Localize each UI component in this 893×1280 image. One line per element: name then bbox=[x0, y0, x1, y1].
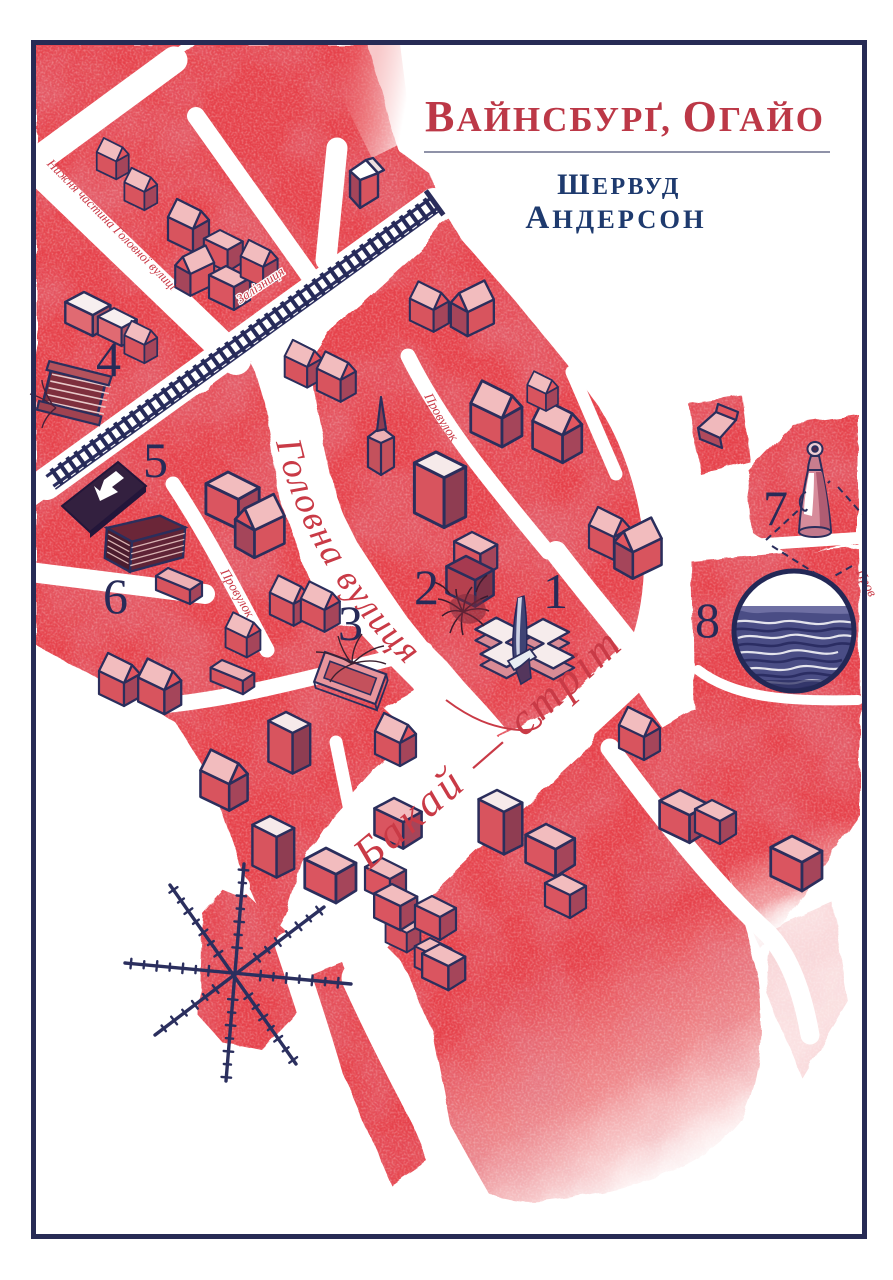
svg-text:4: 4 bbox=[96, 331, 121, 387]
svg-text:6: 6 bbox=[103, 568, 128, 624]
svg-text:АНДЕРСОН: АНДЕРСОН bbox=[525, 200, 706, 236]
svg-text:5: 5 bbox=[143, 432, 168, 488]
svg-text:3: 3 bbox=[338, 595, 363, 651]
svg-text:ШЕРВУД: ШЕРВУД bbox=[557, 169, 681, 201]
svg-text:2: 2 bbox=[414, 559, 439, 615]
svg-text:1: 1 bbox=[543, 563, 568, 619]
svg-text:7: 7 bbox=[763, 480, 788, 536]
svg-text:ВАЙНСБУРҐ, ОГАЙО: ВАЙНСБУРҐ, ОГАЙО bbox=[425, 92, 825, 141]
svg-text:8: 8 bbox=[695, 592, 720, 648]
